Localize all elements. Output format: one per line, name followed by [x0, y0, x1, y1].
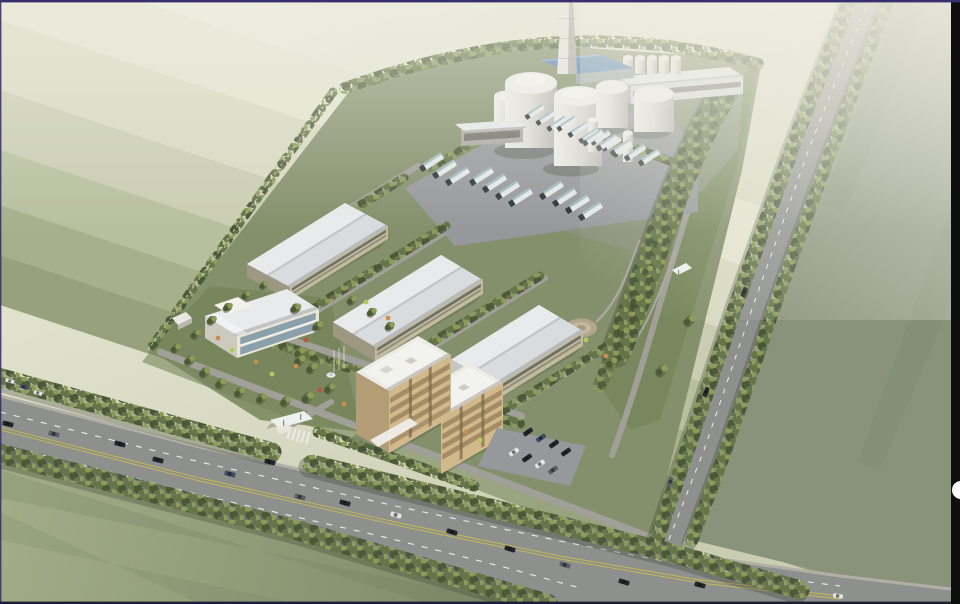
right-edge-strip [951, 0, 960, 604]
flowering-shrub [604, 354, 609, 359]
flowering-shrub [464, 430, 469, 435]
rendering-viewport [0, 0, 960, 604]
flowering-shrub [478, 438, 483, 443]
flowering-shrub [364, 300, 369, 305]
flowering-shrub [254, 360, 259, 365]
flowering-shrub [230, 348, 235, 353]
flowering-shrub [294, 364, 299, 369]
aerial-rendering [0, 0, 960, 604]
left-border [0, 0, 1, 604]
fountain [327, 372, 336, 377]
haze-right [580, 0, 960, 320]
flowering-shrub [216, 336, 221, 341]
flowering-shrub [270, 372, 275, 377]
flowering-shrub [584, 338, 589, 343]
right-strip-top [951, 0, 960, 2]
flowering-shrub [386, 316, 391, 321]
flowering-shrub [318, 388, 323, 393]
top-border [0, 0, 960, 2]
flowering-shrub [342, 402, 347, 407]
flowering-shrub [304, 338, 309, 343]
